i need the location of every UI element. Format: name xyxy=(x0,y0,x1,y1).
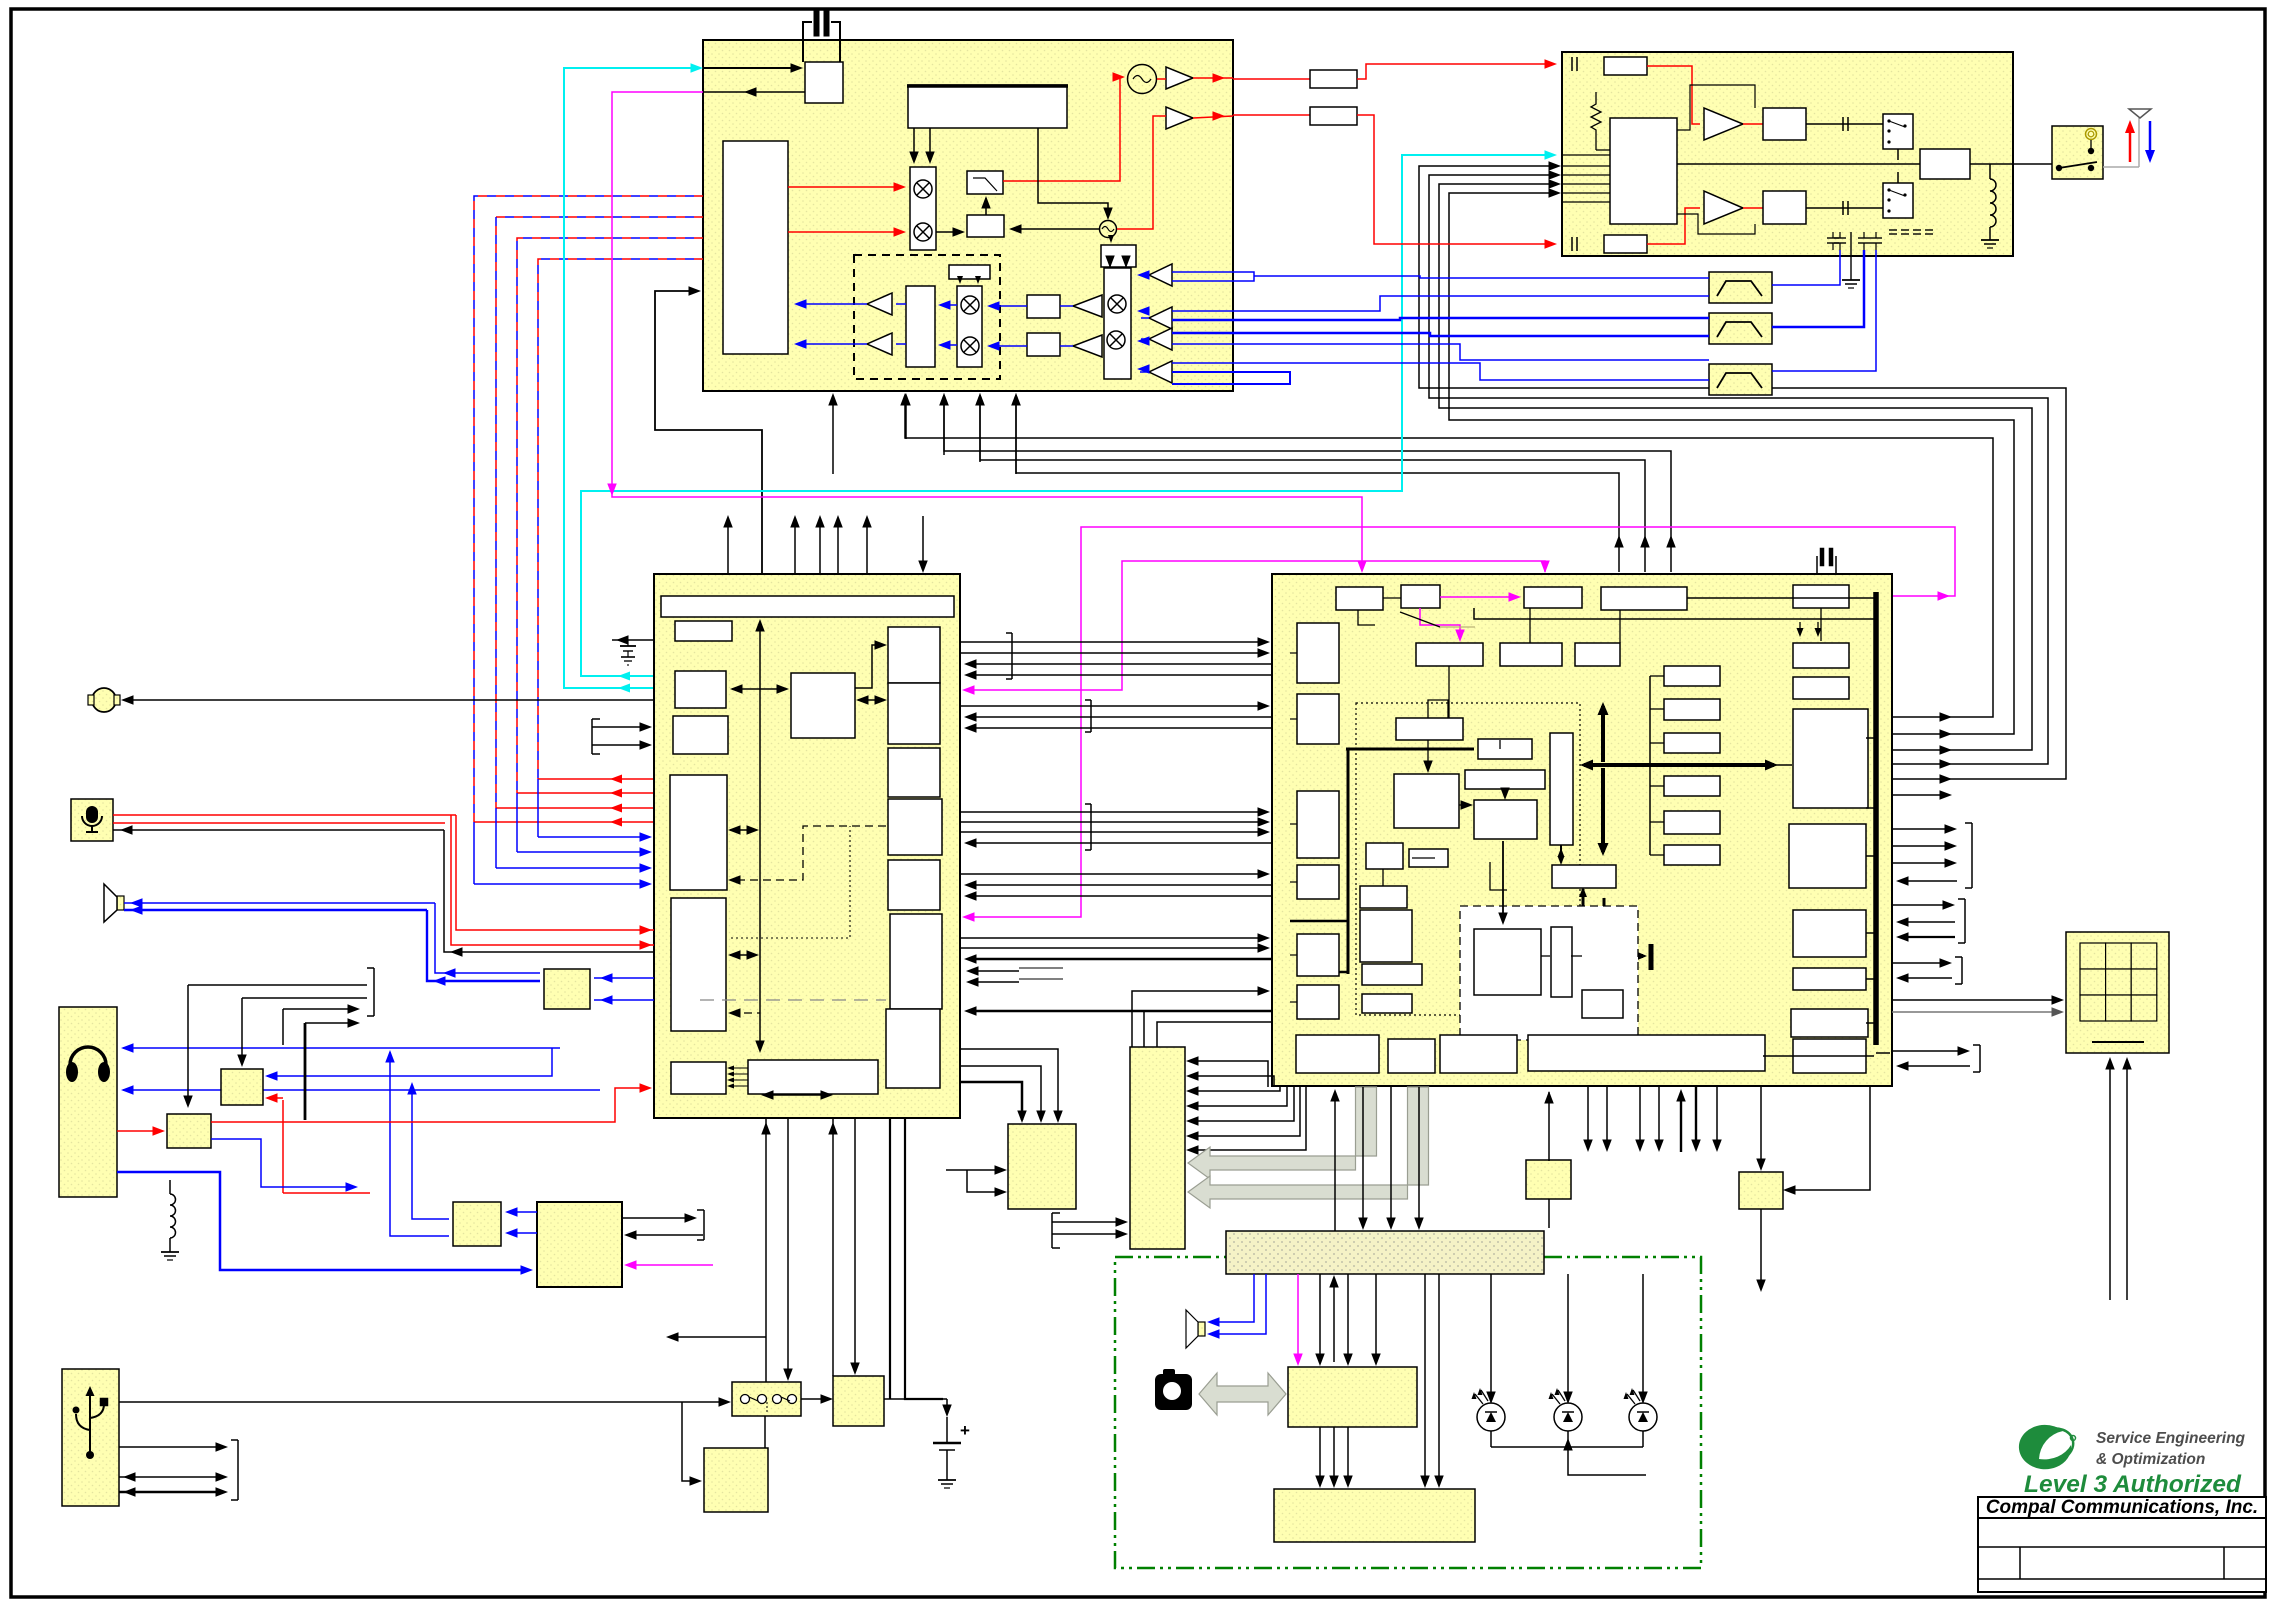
svg-text:Service Engineering: Service Engineering xyxy=(2096,1430,2246,1447)
svg-text:Compal Communications, Inc.: Compal Communications, Inc. xyxy=(1986,1497,2258,1518)
svg-text:+: + xyxy=(960,1421,970,1440)
svg-text:Level 3 Authorized: Level 3 Authorized xyxy=(2024,1471,2242,1498)
svg-text:& Optimization: & Optimization xyxy=(2096,1451,2205,1468)
